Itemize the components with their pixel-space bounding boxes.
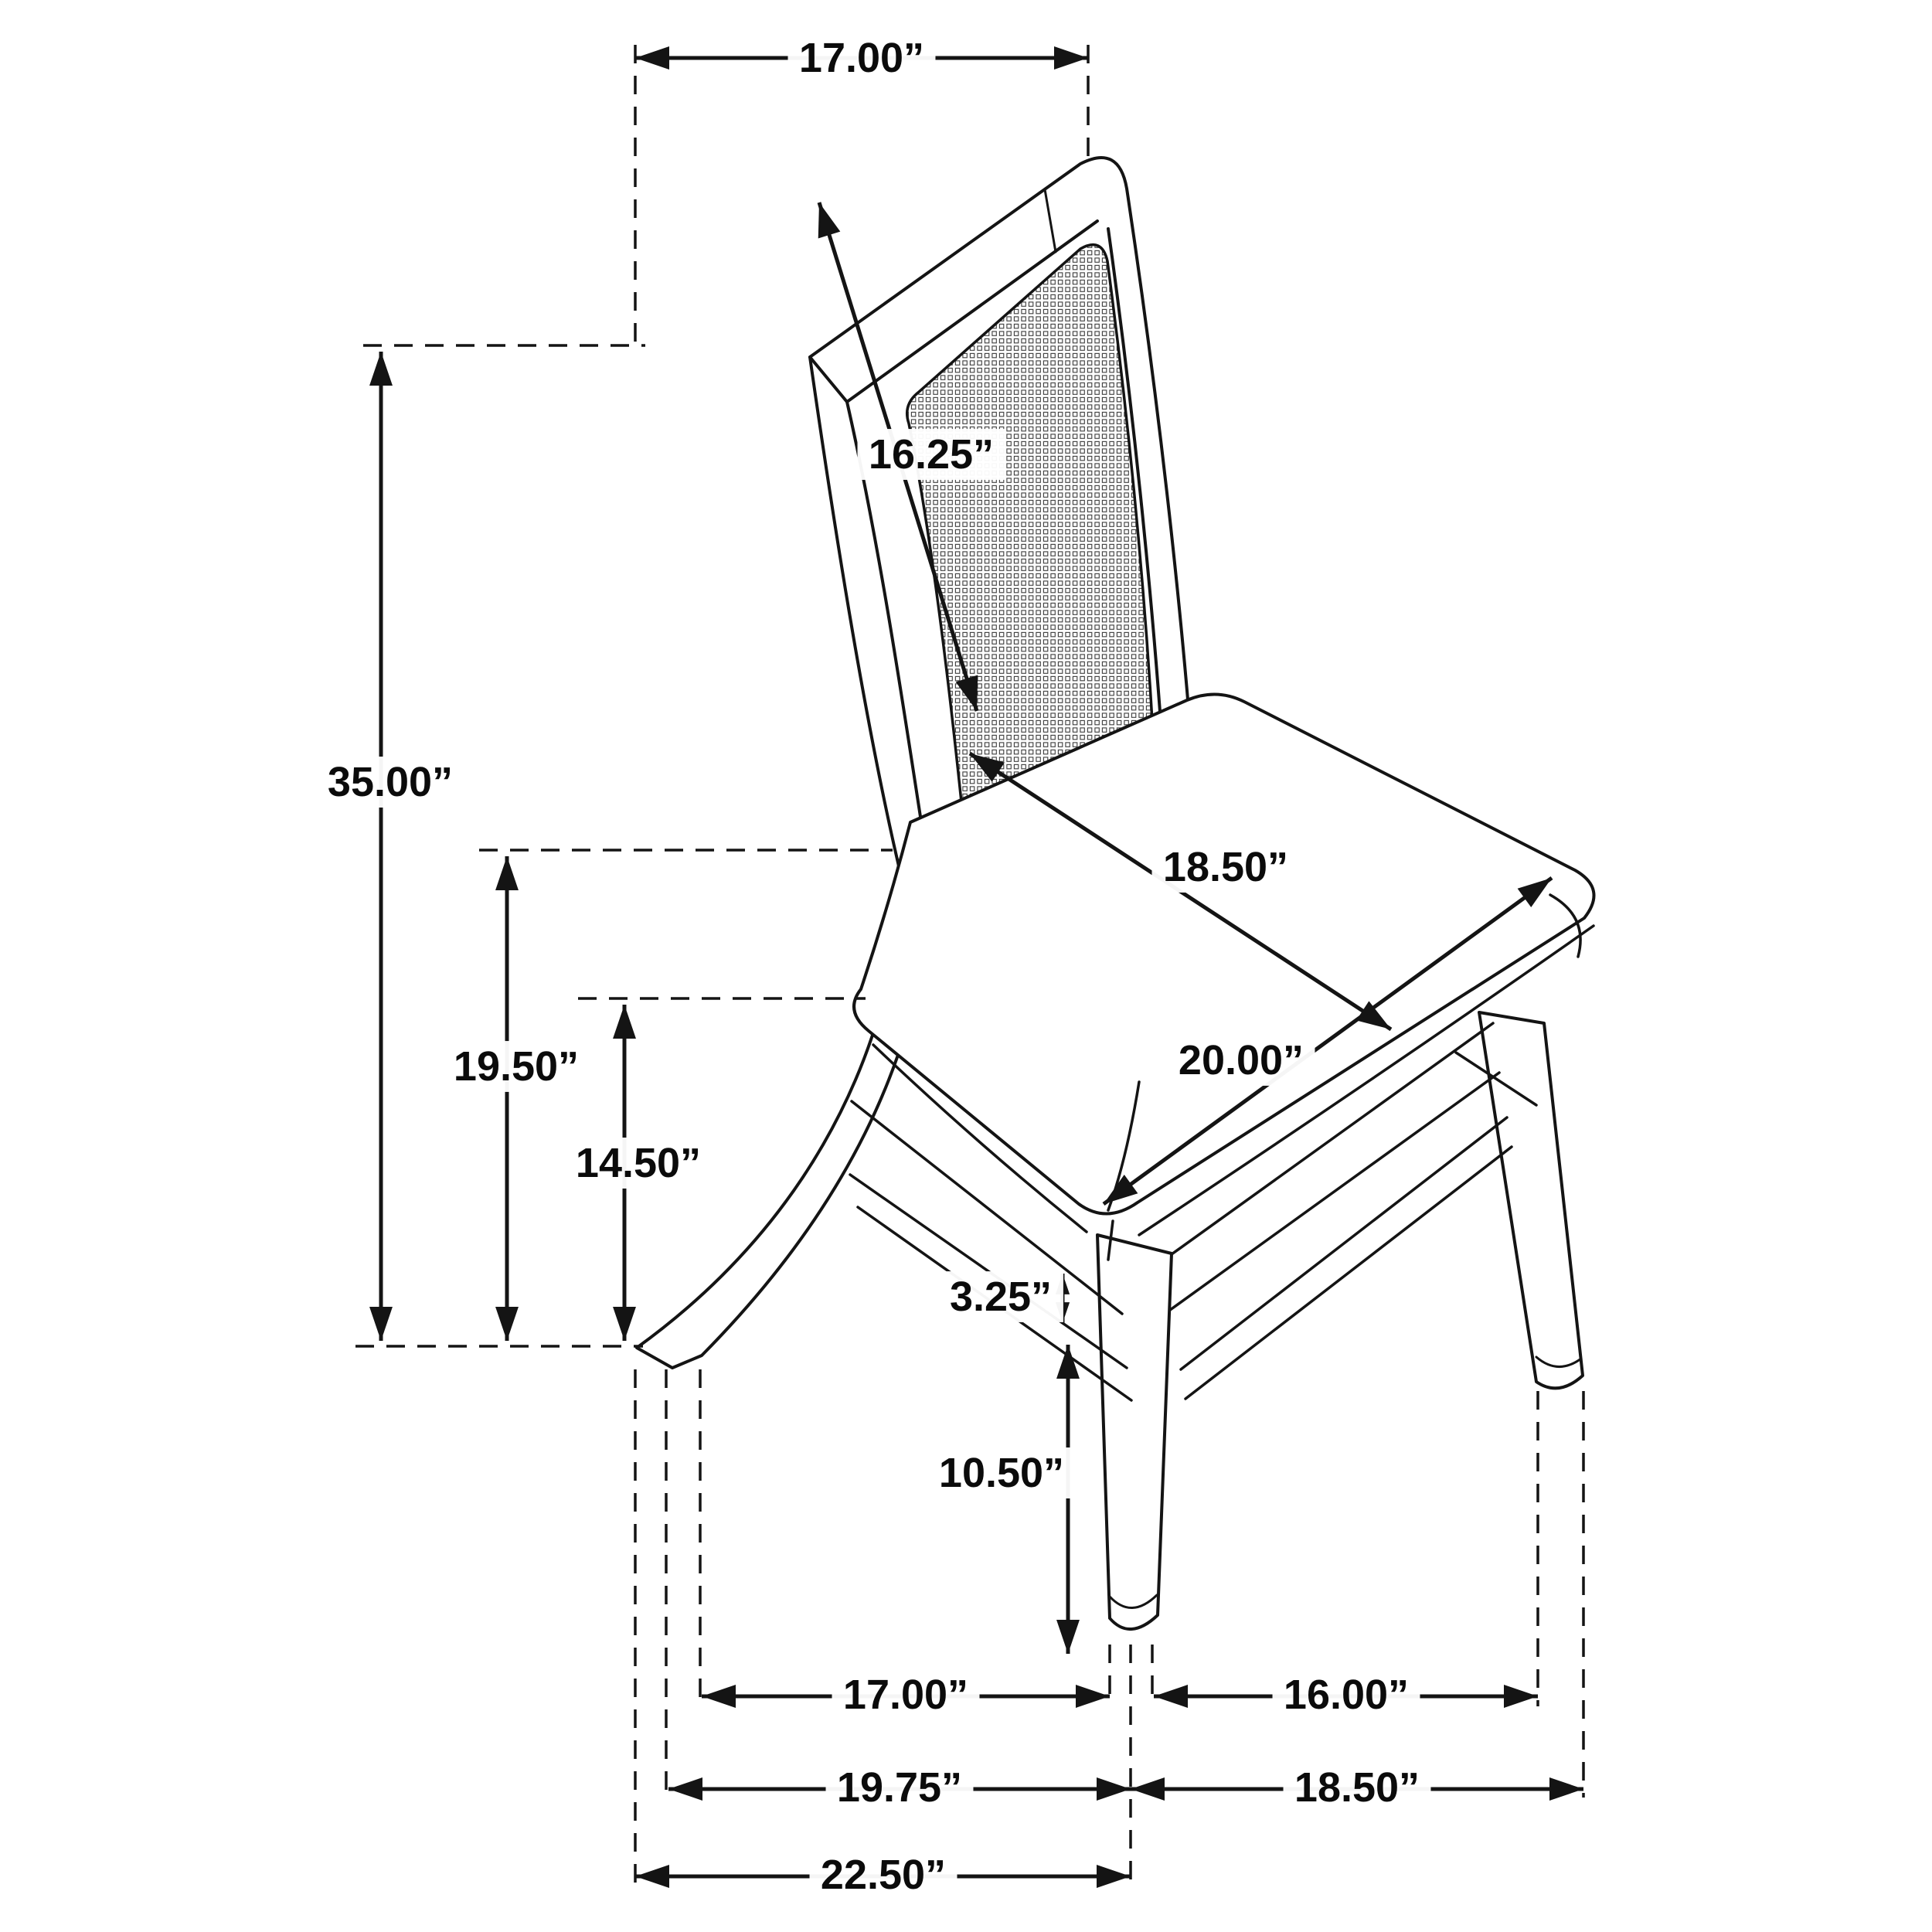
arrowhead [1076, 1685, 1110, 1708]
dimension-overall-height: 35.00” [317, 352, 464, 1341]
arrowhead [1097, 1777, 1131, 1801]
dimension-label-overall-depth: 22.50” [821, 1852, 946, 1898]
dimension-back-top-width: 17.00” [635, 32, 1088, 83]
chair-back-left-stile-and-rear-leg [637, 357, 932, 1368]
arrowhead [635, 1865, 669, 1888]
dimension-label-leg-center-width: 18.50” [1294, 1764, 1420, 1811]
arrowhead [818, 202, 841, 238]
dimension-floor-to-seat-height: 19.50” [443, 856, 590, 1341]
chair-back-rail-seam [1045, 189, 1056, 252]
dimension-label-inside-leg-depth: 17.00” [843, 1672, 968, 1718]
arrowhead [1549, 1777, 1583, 1801]
dimension-label-leg-height: 10.50” [939, 1450, 1064, 1496]
arrowhead [1131, 1777, 1165, 1801]
dimension-label-overall-height: 35.00” [328, 759, 453, 805]
chair-dimension-diagram: 17.00”16.25”35.00”19.50”14.50”18.50”20.0… [0, 0, 1932, 1932]
arrowhead [369, 352, 393, 386]
arrowhead [613, 1307, 636, 1341]
dimension-leg-height: 10.50” [928, 1345, 1080, 1654]
arrowhead [1056, 1620, 1080, 1654]
dimension-label-seat-depth: 18.50” [1163, 844, 1288, 890]
dimension-leg-center-width: 18.50” [1131, 1762, 1583, 1813]
dimension-label-apron-stretcher-gap: 3.25” [950, 1274, 1052, 1320]
arrowhead [495, 856, 519, 890]
arrowhead [668, 1777, 702, 1801]
dimension-label-back-top-width: 17.00” [799, 35, 924, 81]
dimension-label-floor-to-seat-height: 19.50” [454, 1043, 579, 1090]
dimension-label-inside-leg-width: 16.00” [1284, 1672, 1409, 1718]
chair-front-leg [1097, 1235, 1172, 1629]
arrowhead [702, 1685, 736, 1708]
chair-artwork [637, 158, 1594, 1629]
dimension-leg-center-depth: 19.75” [668, 1762, 1131, 1813]
arrowhead [635, 46, 669, 70]
arrowhead [495, 1307, 519, 1341]
arrowhead [1154, 1685, 1188, 1708]
dimension-overall-depth: 22.50” [635, 1849, 1131, 1900]
dimension-label-seat-width: 20.00” [1179, 1037, 1304, 1083]
dimension-drawing-canvas: 17.00”16.25”35.00”19.50”14.50”18.50”20.0… [0, 0, 1932, 1932]
dimension-label-floor-to-apron-height: 14.50” [576, 1140, 701, 1186]
chair-rear-right-leg [1479, 1012, 1583, 1388]
dimension-inside-leg-width: 16.00” [1154, 1669, 1538, 1720]
dimension-label-leg-center-depth: 19.75” [837, 1764, 962, 1811]
dimension-inside-leg-depth: 17.00” [702, 1669, 1110, 1720]
arrowhead [1504, 1685, 1538, 1708]
arrowhead [1097, 1865, 1131, 1888]
arrowhead [1054, 46, 1088, 70]
dimension-label-back-panel-height: 16.25” [869, 431, 994, 478]
arrowhead [613, 1005, 636, 1039]
arrowhead [369, 1307, 393, 1341]
dimension-apron-stretcher-gap: 3.25” [938, 1271, 1070, 1323]
